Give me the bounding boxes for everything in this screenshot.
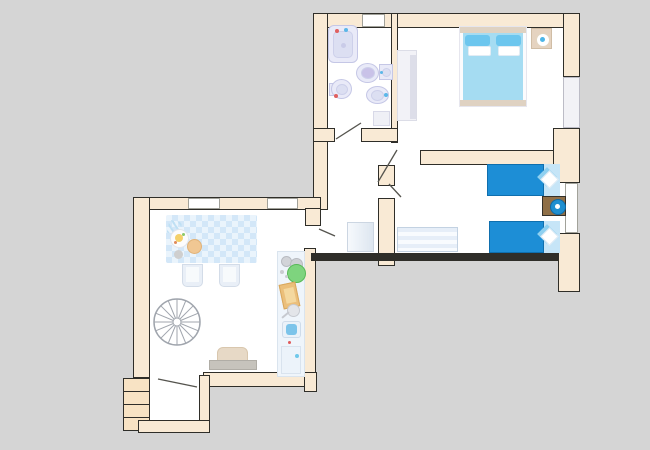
wall-south-dark-band <box>311 253 565 261</box>
wall-west-upper <box>313 13 328 210</box>
pillow-icon <box>498 46 520 56</box>
wall-vestibule-bottom <box>138 420 210 433</box>
chair-icon <box>182 264 203 287</box>
pan-icon <box>287 304 300 317</box>
wall-east-lower-pillar <box>558 233 580 292</box>
wall-living-west <box>133 197 150 378</box>
double-bed-icon <box>459 26 527 107</box>
twin-nightstand-icon <box>542 196 566 216</box>
wall-sink-icon <box>379 64 393 80</box>
plate-icon <box>187 239 202 254</box>
washbasin-icon <box>356 63 379 83</box>
wall-vestibule-east <box>199 375 210 425</box>
floor-vestibule <box>148 374 202 426</box>
lower-cabinet-icon <box>281 346 301 374</box>
pillow-icon <box>496 35 521 46</box>
faucet-dot-icon <box>288 341 291 344</box>
wall-corner-landing <box>378 165 395 186</box>
bidet-icon <box>366 86 389 104</box>
sofa-base-icon <box>209 360 257 370</box>
window-east-twin <box>565 183 578 233</box>
wall-bedroom-south <box>420 150 566 165</box>
toilet-icon <box>331 79 352 99</box>
entry-step <box>123 378 150 392</box>
shower-mat-icon <box>373 111 390 126</box>
table-item-icon <box>174 250 183 259</box>
window-living-1 <box>188 198 220 209</box>
wall-living-east <box>304 248 316 378</box>
sink-icon <box>282 321 301 338</box>
pillow-icon <box>465 35 490 46</box>
floor-plan <box>0 0 650 450</box>
spiral-staircase-icon <box>152 297 202 347</box>
wardrobe-icon <box>397 50 417 121</box>
kitchen-counter-icon <box>277 251 305 377</box>
radiator-icon <box>347 222 374 252</box>
bathtub-icon <box>328 25 358 63</box>
chair-icon <box>219 264 240 287</box>
entry-step <box>123 391 150 405</box>
wall-bathroom-bottom-right <box>361 128 398 142</box>
wall-east-upper <box>563 13 580 77</box>
wall-bathroom-bottom-left <box>313 128 335 142</box>
bedroom-nightstand-icon <box>531 28 552 49</box>
wall-living-east-stub <box>305 208 321 226</box>
single-bed-icon <box>489 221 560 253</box>
window-east-bedroom <box>563 77 580 128</box>
window-living-2 <box>267 198 298 209</box>
wall-living-bottom-tab <box>304 372 317 392</box>
pillow-icon <box>468 46 491 56</box>
plant-icon <box>287 264 306 283</box>
single-bed-icon <box>487 164 560 196</box>
entry-step <box>123 404 150 418</box>
dresser-icon <box>397 227 458 252</box>
window-top-wall <box>362 14 385 27</box>
